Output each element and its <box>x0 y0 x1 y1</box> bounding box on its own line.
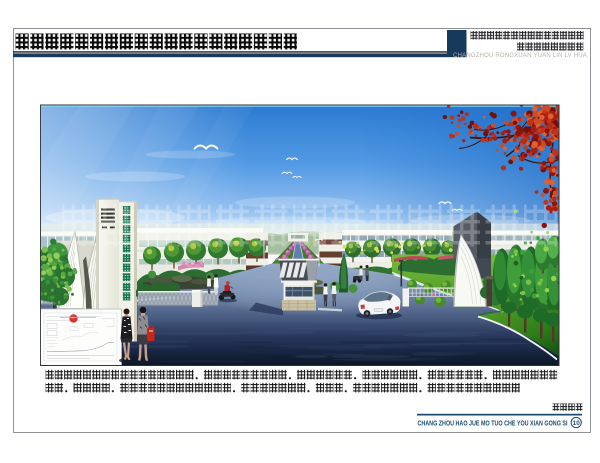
svg-text:CHANGZHOU RONGXUAN YUAN LIN LV: CHANGZHOU RONGXUAN YUAN LIN LV HUA <box>453 53 587 59</box>
svg-text:10: 10 <box>573 420 581 427</box>
svg-text:CHANG ZHOU HAO JUE MO TUO CHE: CHANG ZHOU HAO JUE MO TUO CHE YOU XIAN G… <box>418 419 568 428</box>
